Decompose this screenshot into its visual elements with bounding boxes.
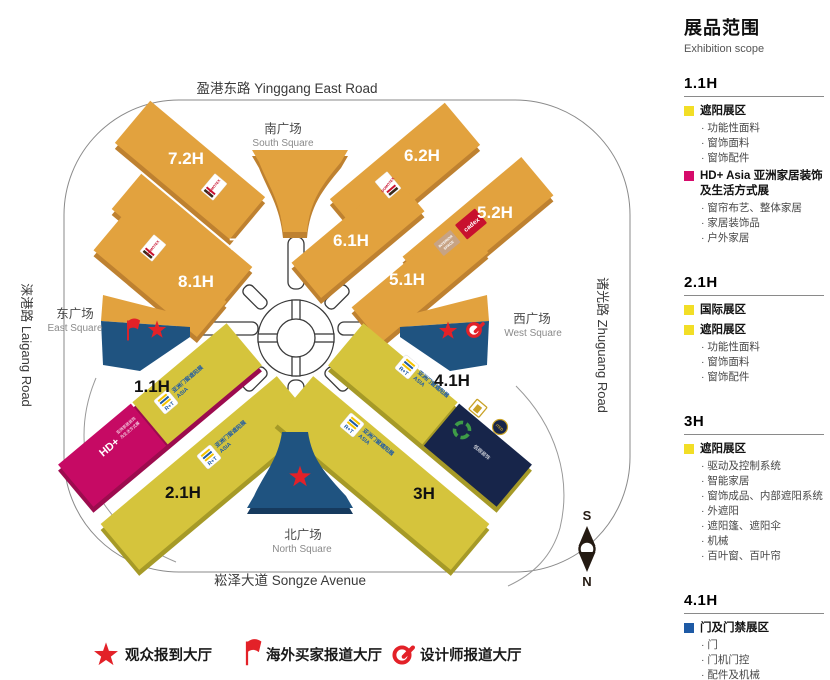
- hub-inner-circle: [277, 319, 315, 357]
- sidebar-subtitle: Exhibition scope: [684, 43, 824, 55]
- exhibit-group: 国际展区: [684, 303, 824, 318]
- group-item: 驱动及控制系统: [701, 460, 824, 472]
- hall-label-7-2h: 7.2H: [168, 149, 204, 168]
- square-label-north-en: North Square: [272, 544, 332, 555]
- designer-icon: [394, 647, 413, 662]
- group-item: 窗饰配件: [701, 371, 824, 383]
- exhibit-group: 门及门禁展区: [684, 621, 824, 636]
- road-label-bottom: 崧泽大道 Songze Avenue: [214, 573, 366, 588]
- group-name: 遮阳展区: [700, 323, 746, 338]
- ited-badge-icon: ITED: [493, 420, 508, 435]
- square-label-north-cn: 北广场: [284, 528, 322, 542]
- legend-label-designer: 设计师报道大厅: [420, 646, 522, 664]
- hall-section: 3H 遮阳展区驱动及控制系统智能家居窗饰成品、内部遮阳系统外遮阳遮阳篷、遮阳伞机…: [684, 413, 824, 562]
- group-item: 功能性面料: [701, 341, 824, 353]
- group-item: 门机门控: [701, 654, 824, 666]
- compass-south-label: S: [583, 508, 592, 523]
- hall-label-4-1h: 4.1H: [434, 371, 470, 390]
- sidebar-title: 展品范围: [684, 14, 824, 40]
- legend-label-overseas-buyer: 海外买家报道大厅: [266, 646, 382, 664]
- hall-label-6-2h: 6.2H: [404, 146, 440, 165]
- south-entrance: [252, 150, 348, 238]
- group-item: 百叶窗、百叶帘: [701, 550, 824, 562]
- group-name: 遮阳展区: [700, 104, 746, 119]
- group-name: 门及门禁展区: [700, 621, 769, 636]
- group-item: 外遮阳: [701, 505, 824, 517]
- flag-icon: [246, 639, 262, 665]
- group-item: 配件及机械: [701, 669, 824, 680]
- hall-label-1-1h: 1.1H: [134, 377, 170, 396]
- hall-label-7-1h: 7.1H: [229, 235, 265, 254]
- compass-needle-down: [579, 552, 596, 572]
- square-label-west-en: West Square: [504, 328, 562, 339]
- road-label-left: 涞港路 Laigang Road: [19, 283, 34, 407]
- square-label-east-en: East Square: [47, 323, 102, 334]
- section-groups: 遮阳展区功能性面料窗饰面料窗饰配件HD+ Asia 亚洲家居装饰 及生活方式展窗…: [684, 104, 824, 244]
- group-item: 遮阳篷、遮阳伞: [701, 520, 824, 532]
- hall-section: 1.1H 遮阳展区功能性面料窗饰面料窗饰配件HD+ Asia 亚洲家居装饰 及生…: [684, 75, 824, 244]
- section-groups: 门及门禁展区门门机门控配件及机械低碳装饰展区内装工业化展区: [684, 621, 824, 680]
- group-item: 功能性面料: [701, 122, 824, 134]
- group-color-swatch: [684, 305, 694, 315]
- exhibit-group: 遮阳展区: [684, 104, 824, 119]
- road-label-right: 诸光路 Zhuguang Road: [595, 277, 610, 413]
- map-legend: 观众报到大厅 海外买家报道大厅 设计师报道大厅: [94, 639, 522, 665]
- hall-label-5-1h: 5.1H: [389, 270, 425, 289]
- road-label-top: 盈港东路 Yinggang East Road: [196, 81, 377, 96]
- hall-section: 2.1H 国际展区遮阳展区功能性面料窗饰面料窗饰配件: [684, 274, 824, 383]
- compass: S N: [579, 508, 596, 589]
- exhibition-map-page: DOMOTEX DOMOTEX DOMOTEX cadex INTERIOR S…: [0, 0, 830, 680]
- group-item: 智能家居: [701, 475, 824, 487]
- group-color-swatch: [684, 623, 694, 633]
- exhibit-group: 遮阳展区: [684, 323, 824, 338]
- group-item: 窗帘布艺、整体家居: [701, 202, 824, 214]
- group-item: 窗饰面料: [701, 356, 824, 368]
- exhibition-scope-sidebar: 展品范围 Exhibition scope 1.1H 遮阳展区功能性面料窗饰面料…: [684, 14, 824, 680]
- group-color-swatch: [684, 325, 694, 335]
- hall-label-8-1h: 8.1H: [178, 272, 214, 291]
- group-name: 遮阳展区: [700, 442, 746, 457]
- exhibit-group: HD+ Asia 亚洲家居装饰 及生活方式展: [684, 169, 824, 199]
- hall-label-3h: 3H: [413, 484, 435, 503]
- legend-label-visitor: 观众报到大厅: [125, 646, 212, 664]
- square-label-south-cn: 南广场: [264, 121, 302, 136]
- group-color-swatch: [684, 106, 694, 116]
- group-item: 门: [701, 639, 824, 651]
- square-label-south-en: South Square: [252, 138, 314, 149]
- section-groups: 遮阳展区驱动及控制系统智能家居窗饰成品、内部遮阳系统外遮阳遮阳篷、遮阳伞机械百叶…: [684, 442, 824, 562]
- group-name: 国际展区: [700, 303, 746, 318]
- section-hall: 2.1H: [684, 274, 824, 296]
- hall-label-2-1h: 2.1H: [165, 483, 201, 502]
- group-item: 家居装饰品: [701, 217, 824, 229]
- hall-label-6-1h: 6.1H: [333, 231, 369, 250]
- group-item: 窗饰配件: [701, 152, 824, 164]
- exhibit-group: 遮阳展区: [684, 442, 824, 457]
- section-hall: 1.1H: [684, 75, 824, 97]
- star-icon: [94, 642, 118, 665]
- hall-section: 4.1H 门及门禁展区门门机门控配件及机械低碳装饰展区内装工业化展区: [684, 592, 824, 680]
- group-color-swatch: [684, 171, 694, 181]
- hall-label-5-2h: 5.2H: [477, 203, 513, 222]
- group-color-swatch: [684, 444, 694, 454]
- square-label-east-cn: 东广场: [56, 307, 94, 321]
- section-hall: 4.1H: [684, 592, 824, 614]
- compass-north-label: N: [582, 574, 591, 589]
- group-item: 机械: [701, 535, 824, 547]
- floor-plan-map: DOMOTEX DOMOTEX DOMOTEX cadex INTERIOR S…: [0, 0, 680, 680]
- sidebar-sections: 1.1H 遮阳展区功能性面料窗饰面料窗饰配件HD+ Asia 亚洲家居装饰 及生…: [684, 75, 824, 680]
- group-item: 户外家居: [701, 232, 824, 244]
- group-name: HD+ Asia 亚洲家居装饰 及生活方式展: [700, 169, 824, 199]
- square-label-west-cn: 西广场: [513, 312, 551, 326]
- section-groups: 国际展区遮阳展区功能性面料窗饰面料窗饰配件: [684, 303, 824, 383]
- section-hall: 3H: [684, 413, 824, 435]
- group-item: 窗饰面料: [701, 137, 824, 149]
- group-item: 窗饰成品、内部遮阳系统: [701, 490, 824, 502]
